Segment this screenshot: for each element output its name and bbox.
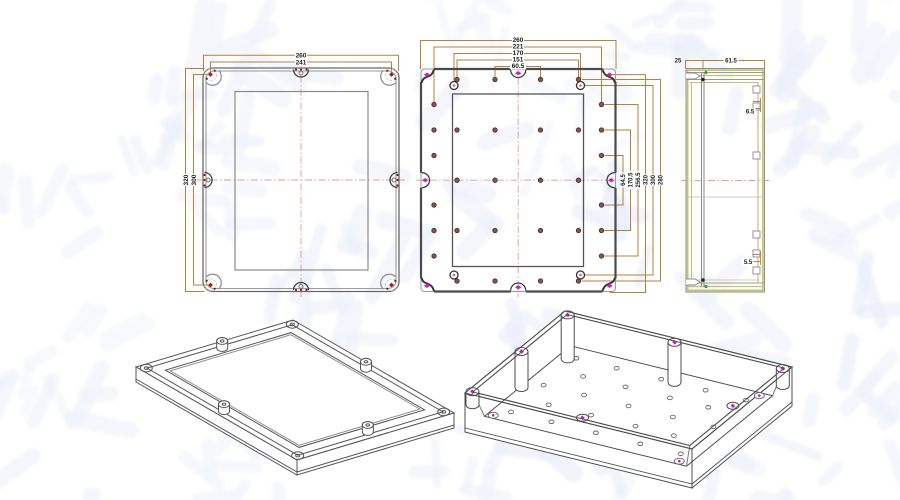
svg-text:241: 241 bbox=[296, 59, 307, 66]
svg-text:320: 320 bbox=[183, 174, 190, 185]
svg-text:5.5: 5.5 bbox=[744, 260, 753, 266]
svg-text:320: 320 bbox=[644, 174, 650, 185]
svg-text:280: 280 bbox=[659, 174, 665, 185]
svg-text:170.5: 170.5 bbox=[629, 172, 635, 188]
svg-text:64.5: 64.5 bbox=[621, 174, 627, 186]
svg-text:300: 300 bbox=[191, 174, 198, 185]
svg-text:256.5: 256.5 bbox=[636, 172, 642, 188]
svg-text:60.5: 60.5 bbox=[512, 63, 525, 70]
svg-text:300: 300 bbox=[651, 174, 657, 185]
svg-text:25: 25 bbox=[675, 59, 682, 65]
svg-text:61.5: 61.5 bbox=[725, 59, 737, 65]
svg-text:6.5: 6.5 bbox=[746, 110, 755, 116]
